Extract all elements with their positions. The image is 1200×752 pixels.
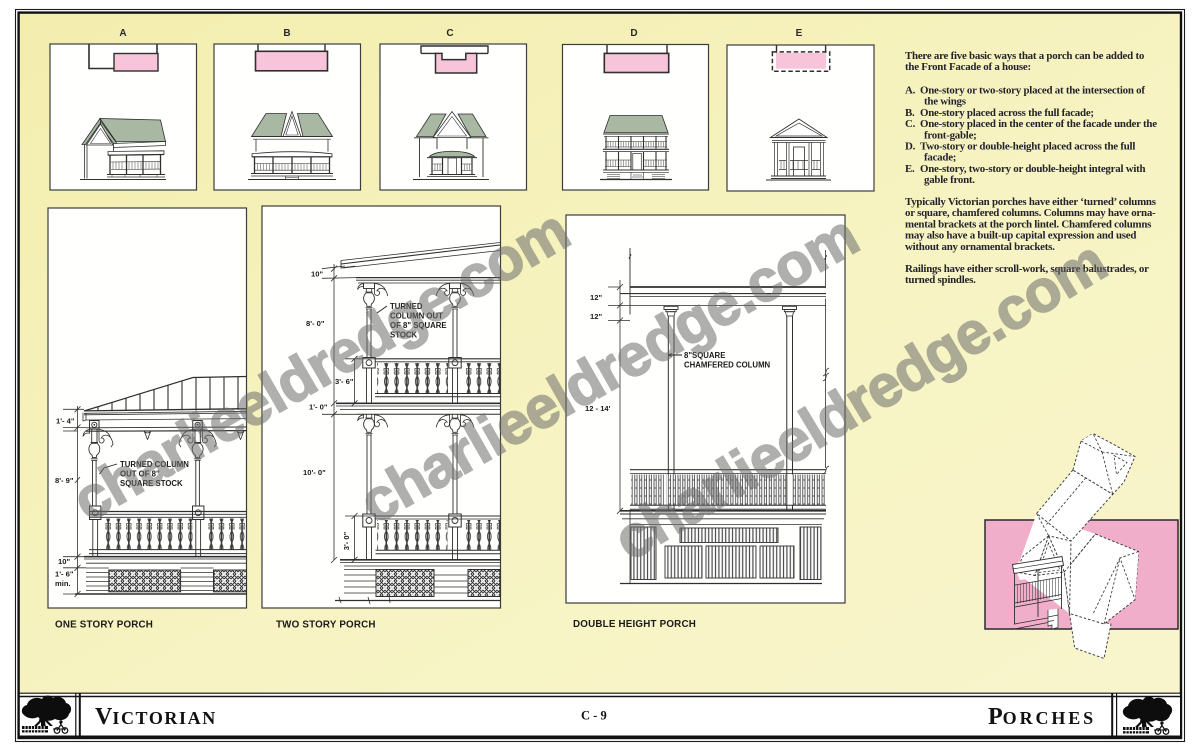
svg-text:or square, chamfered columns.: or square, chamfered columns. Columns ma… (905, 207, 1156, 219)
svg-text:TWO STORY PORCH: TWO STORY PORCH (276, 620, 376, 631)
svg-text:DOUBLE HEIGHT PORCH: DOUBLE HEIGHT PORCH (573, 619, 696, 630)
svg-text:3'- 0": 3'- 0" (342, 531, 351, 550)
svg-text:the Front Facade of a house:: the Front Facade of a house: (905, 61, 1031, 73)
svg-text:VICTORIAN: VICTORIAN (95, 704, 217, 730)
svg-text:1'- 4": 1'- 4" (56, 417, 75, 426)
svg-text:may also have a built-up capit: may also have a built-up capital express… (905, 230, 1136, 242)
svg-text:without any ornamental bracket: without any ornamental brackets. (905, 241, 1055, 253)
svg-text:One-story placed across the fu: One-story placed across the full facade; (920, 107, 1094, 119)
svg-text:the wings: the wings (924, 96, 966, 108)
svg-text:gable front.: gable front. (924, 174, 975, 186)
svg-text:10": 10" (58, 557, 70, 566)
svg-text:B.: B. (905, 107, 915, 119)
svg-text:10": 10" (311, 270, 323, 279)
svg-text:E.: E. (905, 163, 915, 175)
svg-text:One-story or two-story placed: One-story or two-story placed at the int… (920, 85, 1145, 97)
svg-text:min.: min. (55, 579, 71, 588)
svg-text:ONE STORY PORCH: ONE STORY PORCH (55, 620, 153, 631)
svg-text:12": 12" (590, 312, 602, 321)
svg-text:10'- 0": 10'- 0" (303, 468, 326, 477)
svg-text:12": 12" (590, 293, 602, 302)
svg-text:front-gable;: front-gable; (924, 129, 977, 141)
svg-text:There are five basic ways that: There are five basic ways that a porch c… (905, 50, 1145, 62)
svg-text:C.: C. (905, 118, 916, 130)
svg-text:B: B (283, 28, 290, 39)
svg-text:turned spindles.: turned spindles. (905, 274, 976, 286)
svg-text:CHAMFERED COLUMN: CHAMFERED COLUMN (684, 361, 771, 370)
svg-text:A.: A. (905, 85, 916, 97)
svg-text:PORCHES: PORCHES (988, 704, 1096, 730)
svg-text:C - 9: C - 9 (581, 709, 607, 723)
svg-text:D: D (630, 28, 637, 39)
svg-text:Two-story or double-height pla: Two-story or double-height placed across… (920, 141, 1135, 153)
svg-text:One-story, two-story or double: One-story, two-story or double-height in… (920, 163, 1146, 175)
svg-text:D.: D. (905, 141, 916, 153)
svg-text:E: E (796, 28, 803, 39)
svg-text:1'- 6": 1'- 6" (55, 570, 74, 579)
svg-text:Typically Victorian porches ha: Typically Victorian porches have either … (905, 196, 1156, 208)
svg-text:mental brackets at the porch l: mental brackets at the porch lintel. Cha… (905, 218, 1151, 230)
svg-text:facade;: facade; (924, 152, 956, 164)
svg-text:A: A (119, 28, 126, 39)
svg-text:C: C (446, 28, 453, 39)
svg-text:One-story placed in the center: One-story placed in the center of the fa… (920, 118, 1157, 130)
